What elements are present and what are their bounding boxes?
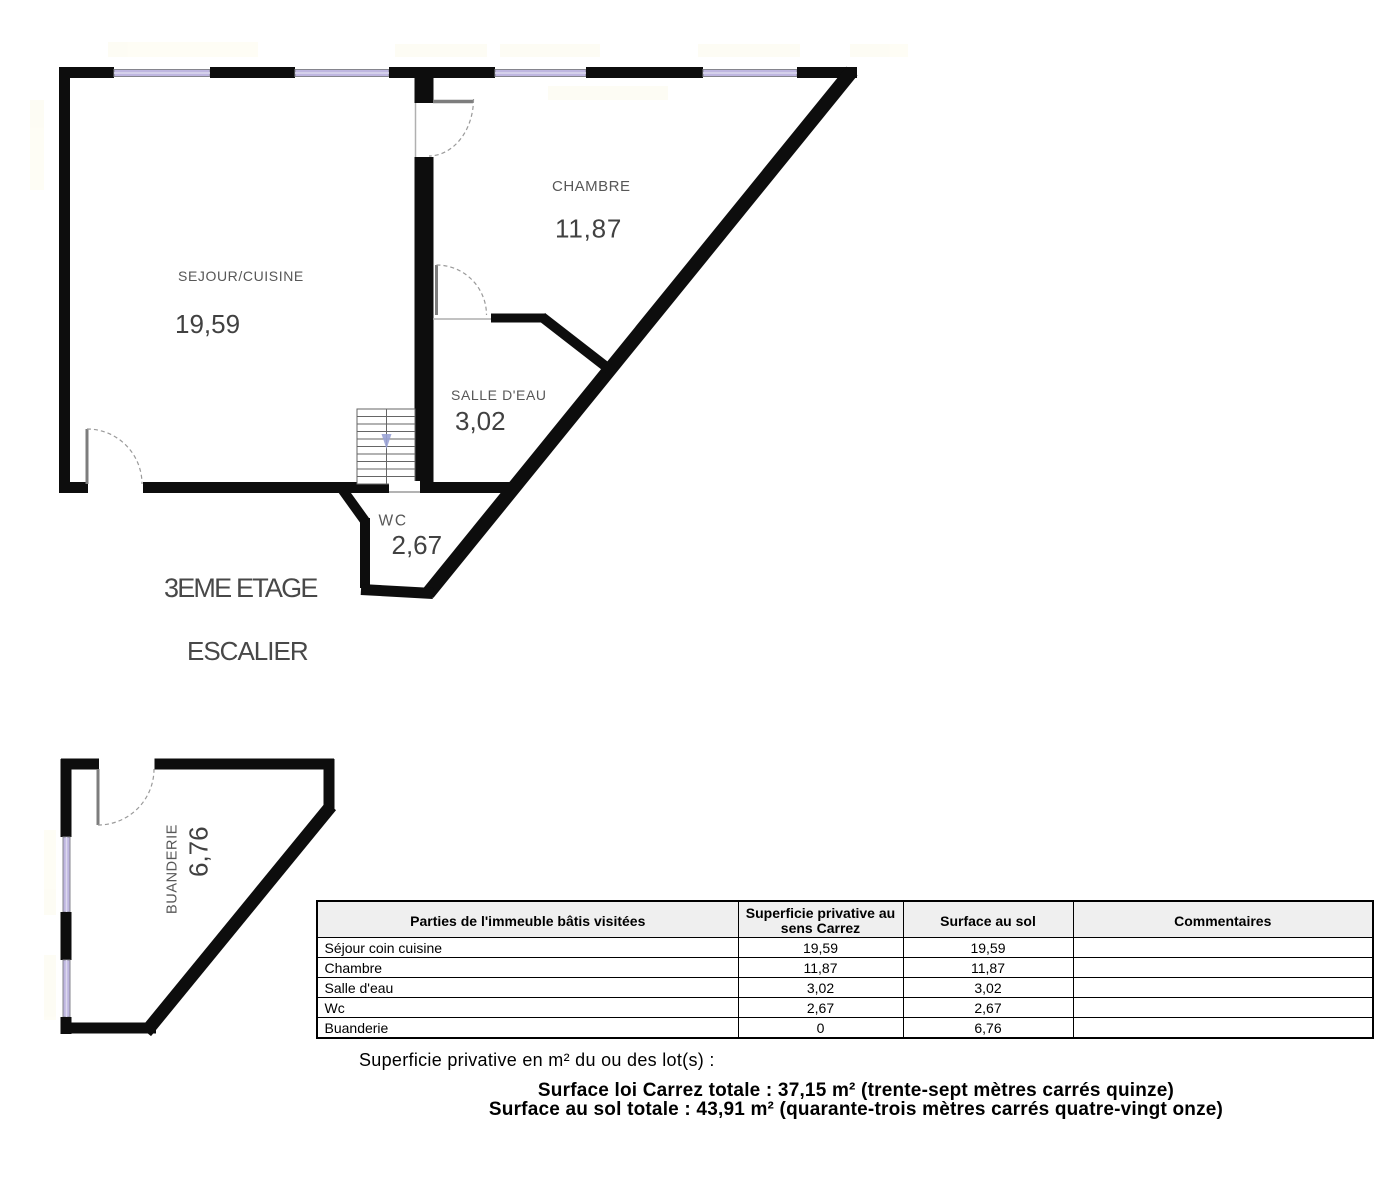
svg-text:CHAMBRE: CHAMBRE — [552, 178, 631, 195]
svg-text:11,87: 11,87 — [555, 214, 622, 244]
svg-text:6,76: 6,76 — [184, 826, 214, 877]
svg-text:BUANDERIE: BUANDERIE — [165, 824, 181, 914]
svg-text:SALLE D'EAU: SALLE D'EAU — [451, 387, 547, 403]
svg-text:ESCALIER: ESCALIER — [187, 636, 308, 666]
svg-text:2,67: 2,67 — [392, 530, 443, 560]
svg-text:3EME ETAGE: 3EME ETAGE — [164, 573, 317, 603]
svg-text:SEJOUR/CUISINE: SEJOUR/CUISINE — [178, 268, 304, 284]
svg-text:19,59: 19,59 — [175, 309, 240, 339]
svg-text:3,02: 3,02 — [455, 406, 506, 436]
svg-text:WC: WC — [379, 513, 408, 530]
